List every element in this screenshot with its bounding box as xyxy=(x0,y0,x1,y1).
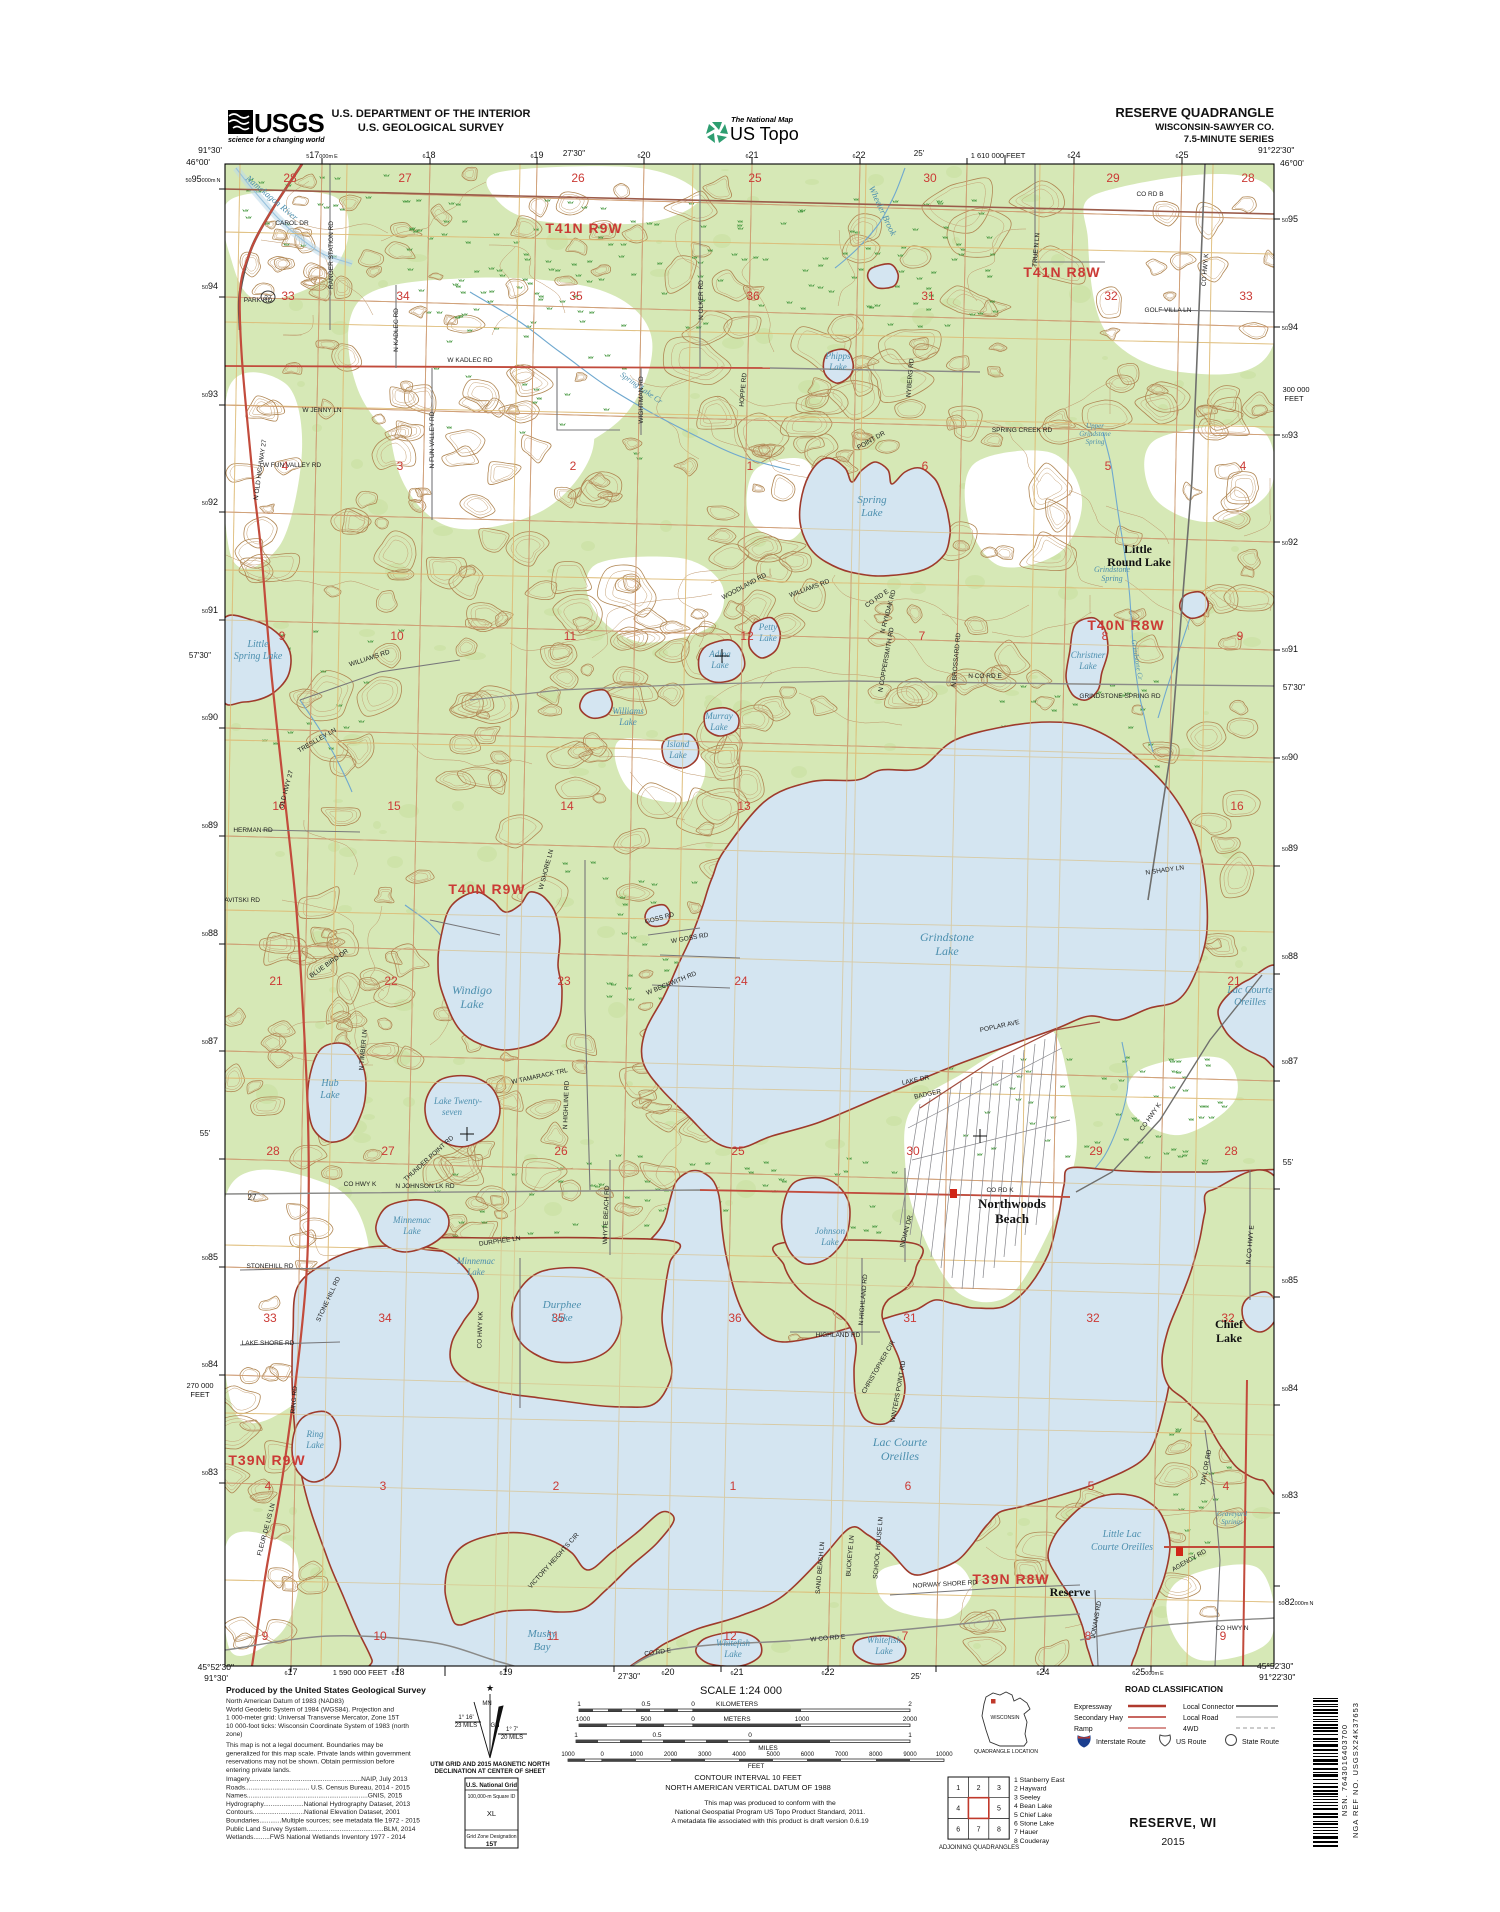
svg-text:Imagery.......................: Imagery.................................… xyxy=(226,1776,408,1783)
svg-text:3 Seeley: 3 Seeley xyxy=(1014,1794,1041,1801)
svg-text:N FUN VALLEY RD: N FUN VALLEY RD xyxy=(429,411,436,468)
svg-text:34: 34 xyxy=(378,1311,392,1325)
svg-text:31: 31 xyxy=(921,289,935,303)
svg-text:Boundaries............Multiple: Boundaries............Multiple sources; … xyxy=(226,1818,420,1825)
svg-text:91°30': 91°30' xyxy=(198,145,222,155)
svg-text:N JOHNSON LK RD: N JOHNSON LK RD xyxy=(395,1183,455,1190)
svg-text:U.S. National Grid: U.S. National Grid xyxy=(466,1783,517,1789)
svg-text:0: 0 xyxy=(748,1732,752,1739)
svg-text:2015: 2015 xyxy=(1161,1836,1185,1848)
svg-text:4: 4 xyxy=(265,1479,272,1493)
svg-text:91°22'30": 91°22'30" xyxy=(1259,1672,1295,1682)
svg-text:State Route: State Route xyxy=(1242,1739,1279,1746)
svg-text:2: 2 xyxy=(908,1701,912,1708)
svg-text:4WD: 4WD xyxy=(1183,1726,1199,1733)
svg-text:CAROL DR: CAROL DR xyxy=(275,220,309,227)
svg-text:300 000: 300 000 xyxy=(1282,385,1309,394)
svg-text:Lake: Lake xyxy=(828,362,847,372)
svg-text:4: 4 xyxy=(1240,459,1247,473)
svg-text:Lake: Lake xyxy=(874,1646,893,1656)
svg-text:2: 2 xyxy=(977,1785,981,1792)
svg-text:5: 5 xyxy=(1088,1479,1095,1493)
svg-text:Spring Lake: Spring Lake xyxy=(234,651,283,662)
svg-text:9: 9 xyxy=(1237,629,1244,643)
svg-text:Little Lac: Little Lac xyxy=(1102,1529,1142,1540)
svg-text:32: 32 xyxy=(1104,289,1118,303)
svg-text:1: 1 xyxy=(574,1732,578,1739)
svg-text:Whitefish: Whitefish xyxy=(867,1635,901,1645)
svg-text:7: 7 xyxy=(919,629,926,643)
svg-text:Expressway: Expressway xyxy=(1074,1704,1112,1711)
svg-text:0.5: 0.5 xyxy=(641,1701,650,1708)
svg-text:13: 13 xyxy=(737,799,751,813)
svg-text:Lake: Lake xyxy=(860,507,883,519)
svg-text:30: 30 xyxy=(906,1144,920,1158)
svg-text:zone): zone) xyxy=(226,1731,243,1738)
svg-text:33: 33 xyxy=(263,1311,277,1325)
svg-text:Little: Little xyxy=(1124,542,1153,556)
svg-text:3: 3 xyxy=(380,1479,387,1493)
svg-text:9: 9 xyxy=(279,629,286,643)
svg-text:SPRING CREEK RD: SPRING CREEK RD xyxy=(992,427,1053,434)
svg-text:2: 2 xyxy=(570,459,577,473)
svg-text:1000: 1000 xyxy=(576,1716,591,1723)
svg-text:Lake: Lake xyxy=(758,633,777,643)
svg-text:RANGER STATION RD: RANGER STATION RD xyxy=(328,221,335,289)
svg-text:CO RD B: CO RD B xyxy=(1136,191,1163,198)
svg-text:Lake: Lake xyxy=(1216,1331,1243,1345)
svg-text:Oreilles: Oreilles xyxy=(881,1449,920,1463)
svg-text:Contours......................: Contours............................Nati… xyxy=(226,1809,400,1816)
svg-text:HIGHLAND RD: HIGHLAND RD xyxy=(816,1332,861,1339)
svg-text:5 Chief Lake: 5 Chief Lake xyxy=(1014,1812,1052,1819)
svg-text:Lake: Lake xyxy=(723,1649,742,1659)
svg-text:generalized for this map scale: generalized for this map scale. Private … xyxy=(226,1750,411,1757)
svg-text:W JENNY LN: W JENNY LN xyxy=(302,407,342,414)
svg-text:270 000: 270 000 xyxy=(186,1381,213,1390)
svg-text:10000: 10000 xyxy=(936,1752,953,1758)
svg-text:ROAD CLASSIFICATION: ROAD CLASSIFICATION xyxy=(1125,1684,1223,1694)
svg-text:30: 30 xyxy=(923,171,937,185)
svg-text:3: 3 xyxy=(997,1785,1001,1792)
svg-text:0.5: 0.5 xyxy=(652,1732,661,1739)
svg-text:Lac Courte: Lac Courte xyxy=(872,1435,928,1449)
svg-text:500: 500 xyxy=(641,1716,652,1723)
svg-text:27'30": 27'30" xyxy=(563,149,585,158)
svg-text:6: 6 xyxy=(905,1479,912,1493)
svg-text:46°00': 46°00' xyxy=(186,157,210,167)
svg-text:N OLKER RD: N OLKER RD xyxy=(698,280,705,320)
svg-text:28: 28 xyxy=(283,171,297,185)
svg-text:Adina: Adina xyxy=(708,649,731,659)
svg-text:3000: 3000 xyxy=(698,1752,712,1758)
svg-text:27: 27 xyxy=(264,295,272,302)
svg-text:25: 25 xyxy=(731,1144,745,1158)
svg-text:UTM GRID AND 2015 MAGNETIC NOR: UTM GRID AND 2015 MAGNETIC NORTH xyxy=(430,1761,550,1768)
svg-text:Oreilles: Oreilles xyxy=(1234,997,1266,1008)
svg-text:25': 25' xyxy=(911,1672,922,1681)
svg-text:Lake: Lake xyxy=(820,1237,839,1247)
svg-text:100,000-m Square ID: 100,000-m Square ID xyxy=(468,1794,516,1800)
svg-text:North American Datum of 1983 (: North American Datum of 1983 (NAD83) xyxy=(226,1698,344,1705)
svg-text:Hydrography...................: Hydrography......................Nationa… xyxy=(226,1801,411,1808)
svg-text:1: 1 xyxy=(747,459,754,473)
svg-text:RESERVE, WI: RESERVE, WI xyxy=(1129,1816,1216,1830)
svg-text:Springs: Springs xyxy=(1221,1518,1243,1526)
svg-text:SAVITSKI RD: SAVITSKI RD xyxy=(220,897,260,904)
svg-text:GN: GN xyxy=(491,1723,500,1729)
svg-text:1000: 1000 xyxy=(795,1716,810,1723)
svg-text:CONTOUR INTERVAL 10 FEET: CONTOUR INTERVAL 10 FEET xyxy=(694,1773,802,1782)
svg-text:entering private lands.: entering private lands. xyxy=(226,1767,291,1774)
svg-text:QUADRANGLE LOCATION: QUADRANGLE LOCATION xyxy=(974,1749,1038,1755)
svg-text:DECLINATION AT CENTER OF SHEET: DECLINATION AT CENTER OF SHEET xyxy=(435,1768,546,1775)
svg-text:Spring: Spring xyxy=(1086,438,1105,446)
svg-text:1: 1 xyxy=(908,1732,912,1739)
svg-text:12: 12 xyxy=(740,629,754,643)
svg-text:MILES: MILES xyxy=(758,1745,778,1752)
svg-text:GRINDSTONE SPRING RD: GRINDSTONE SPRING RD xyxy=(1079,693,1160,700)
svg-text:21: 21 xyxy=(269,974,283,988)
svg-text:T40N R8W: T40N R8W xyxy=(1087,617,1164,633)
svg-text:2000: 2000 xyxy=(903,1716,918,1723)
svg-text:Roads.........................: Roads...................................… xyxy=(226,1784,410,1791)
svg-text:Grindstone: Grindstone xyxy=(1079,430,1111,438)
svg-text:N CO RD E: N CO RD E xyxy=(968,673,1002,680)
svg-text:Public Land Survey System..: Public Land Survey System...............… xyxy=(226,1826,416,1833)
svg-text:N KADLEC RD: N KADLEC RD xyxy=(393,308,400,352)
svg-text:Durphee: Durphee xyxy=(542,1299,582,1311)
svg-text:0: 0 xyxy=(691,1716,695,1723)
svg-text:2: 2 xyxy=(553,1479,560,1493)
svg-text:XL: XL xyxy=(487,1809,496,1818)
svg-text:11: 11 xyxy=(564,629,577,643)
svg-text:22: 22 xyxy=(384,974,398,988)
svg-text:METERS: METERS xyxy=(723,1716,751,1723)
svg-text:NORTH AMERICAN VERTICAL DATUM: NORTH AMERICAN VERTICAL DATUM OF 1988 xyxy=(665,1783,831,1792)
svg-text:World Geodetic System of 1984: World Geodetic System of 1984 (WGS84). P… xyxy=(226,1706,394,1713)
svg-text:NSN. 7643016403700: NSN. 7643016403700 xyxy=(1340,1724,1349,1816)
svg-text:Local Connector: Local Connector xyxy=(1183,1704,1235,1711)
svg-text:Lake: Lake xyxy=(709,722,728,732)
svg-text:Johnson: Johnson xyxy=(815,1226,845,1236)
svg-text:CO HWY K: CO HWY K xyxy=(344,1181,377,1188)
svg-text:FEET: FEET xyxy=(1284,394,1304,403)
svg-text:27: 27 xyxy=(398,171,412,185)
svg-text:Lake: Lake xyxy=(466,1267,485,1277)
svg-text:6: 6 xyxy=(956,1826,960,1833)
svg-text:T40N R9W: T40N R9W xyxy=(448,881,525,897)
svg-text:WISCONSIN-SAWYER CO.: WISCONSIN-SAWYER CO. xyxy=(1155,122,1274,133)
svg-text:1° 7': 1° 7' xyxy=(506,1727,518,1733)
svg-text:8: 8 xyxy=(997,1826,1001,1833)
svg-text:34: 34 xyxy=(396,289,410,303)
svg-text:Spring: Spring xyxy=(857,494,887,506)
svg-text:The National Map: The National Map xyxy=(731,115,794,124)
svg-text:26: 26 xyxy=(571,171,585,185)
svg-text:Northwoods: Northwoods xyxy=(978,1196,1046,1211)
svg-text:2 Hayward: 2 Hayward xyxy=(1014,1786,1047,1793)
svg-text:35: 35 xyxy=(569,289,583,303)
svg-text:32: 32 xyxy=(1086,1311,1100,1325)
svg-text:27'30": 27'30" xyxy=(618,1672,640,1681)
svg-text:28: 28 xyxy=(266,1144,280,1158)
svg-text:0: 0 xyxy=(691,1701,695,1708)
svg-text:1 590 000 FEET: 1 590 000 FEET xyxy=(333,1668,388,1677)
svg-text:46°00': 46°00' xyxy=(1280,158,1304,168)
svg-text:2000: 2000 xyxy=(664,1752,678,1758)
svg-text:W KADLEC RD: W KADLEC RD xyxy=(447,357,492,364)
svg-text:1 Stanberry East: 1 Stanberry East xyxy=(1014,1777,1065,1784)
svg-text:45°52'30": 45°52'30" xyxy=(1257,1661,1293,1671)
svg-text:Round Lake: Round Lake xyxy=(1107,555,1171,569)
svg-text:T39N R9W: T39N R9W xyxy=(228,1452,305,1468)
svg-text:1000: 1000 xyxy=(561,1752,575,1758)
svg-text:45°52'30": 45°52'30" xyxy=(198,1662,234,1672)
svg-text:10 000-foot ticks: Wisconsin C: 10 000-foot ticks: Wisconsin Coordinate … xyxy=(226,1723,409,1730)
svg-text:CO RD K: CO RD K xyxy=(986,1187,1014,1194)
svg-text:Minnemac: Minnemac xyxy=(392,1215,431,1225)
svg-text:25': 25' xyxy=(914,149,925,158)
svg-text:W FUN VALLEY RD: W FUN VALLEY RD xyxy=(263,462,322,469)
svg-text:7000: 7000 xyxy=(835,1752,849,1758)
svg-text:RESERVE QUADRANGLE: RESERVE QUADRANGLE xyxy=(1115,105,1274,120)
svg-text:4000: 4000 xyxy=(732,1752,746,1758)
svg-text:Spring: Spring xyxy=(1101,574,1122,583)
svg-text:T41N R9W: T41N R9W xyxy=(545,220,622,236)
svg-text:31: 31 xyxy=(903,1311,917,1325)
svg-text:USGS: USGS xyxy=(254,108,324,138)
svg-text:A metadata file associated wit: A metadata file associated with this pro… xyxy=(671,1818,868,1825)
svg-text:seven: seven xyxy=(442,1107,462,1117)
svg-text:6 Stone Lake: 6 Stone Lake xyxy=(1014,1821,1054,1828)
svg-text:7: 7 xyxy=(902,1629,909,1643)
svg-text:Graveyard: Graveyard xyxy=(1217,1510,1248,1518)
svg-text:US Route: US Route xyxy=(1176,1739,1206,1746)
svg-text:ADJOINING QUADRANGLES: ADJOINING QUADRANGLES xyxy=(939,1845,1019,1851)
svg-text:Interstate Route: Interstate Route xyxy=(1096,1739,1146,1746)
svg-text:Upper: Upper xyxy=(1086,422,1104,430)
svg-text:Lake: Lake xyxy=(934,944,959,958)
svg-text:91°30': 91°30' xyxy=(204,1673,228,1683)
svg-text:CO HWY KK: CO HWY KK xyxy=(476,1311,484,1349)
svg-text:Christner: Christner xyxy=(1071,650,1106,660)
svg-text:10: 10 xyxy=(390,629,404,643)
svg-text:US Topo: US Topo xyxy=(730,124,799,144)
svg-text:8000: 8000 xyxy=(869,1752,883,1758)
svg-text:Whitefish: Whitefish xyxy=(716,1638,750,1648)
svg-text:1 610 000 FEET: 1 610 000 FEET xyxy=(971,151,1026,160)
svg-text:15: 15 xyxy=(387,799,401,813)
svg-text:6000: 6000 xyxy=(801,1752,815,1758)
svg-text:U.S. GEOLOGICAL SURVEY: U.S. GEOLOGICAL SURVEY xyxy=(358,122,505,134)
svg-text:10: 10 xyxy=(373,1629,387,1643)
svg-text:1: 1 xyxy=(956,1785,960,1792)
svg-text:Lake: Lake xyxy=(668,750,687,760)
svg-text:23 MILS: 23 MILS xyxy=(455,1723,477,1729)
svg-text:57'30": 57'30" xyxy=(1283,683,1305,692)
svg-text:25: 25 xyxy=(748,171,762,185)
svg-text:16: 16 xyxy=(1230,799,1244,813)
svg-text:Petty: Petty xyxy=(758,622,778,632)
svg-text:NGA REF NO. USGSX24K37653: NGA REF NO. USGSX24K37653 xyxy=(1351,1702,1360,1838)
svg-text:7 Hauer: 7 Hauer xyxy=(1014,1829,1039,1836)
svg-text:Grindstone: Grindstone xyxy=(920,930,975,944)
svg-text:6: 6 xyxy=(922,459,929,473)
svg-text:23: 23 xyxy=(557,974,571,988)
svg-text:26: 26 xyxy=(554,1144,568,1158)
svg-text:36: 36 xyxy=(746,289,760,303)
svg-text:7: 7 xyxy=(977,1826,981,1833)
svg-text:29: 29 xyxy=(1089,1144,1103,1158)
svg-text:Chief: Chief xyxy=(1215,1317,1244,1331)
svg-text:55': 55' xyxy=(1283,1158,1294,1167)
svg-text:14: 14 xyxy=(560,799,574,813)
svg-text:Lac Courte: Lac Courte xyxy=(1226,985,1273,996)
svg-text:5: 5 xyxy=(997,1806,1001,1813)
svg-text:Windigo: Windigo xyxy=(452,983,492,997)
svg-text:Lake: Lake xyxy=(1078,661,1097,671)
svg-text:27: 27 xyxy=(381,1144,395,1158)
svg-text:8 Couderay: 8 Couderay xyxy=(1014,1838,1050,1845)
svg-text:MN: MN xyxy=(482,1701,491,1707)
svg-text:33: 33 xyxy=(1239,289,1253,303)
svg-text:Ring: Ring xyxy=(306,1429,324,1439)
svg-text:28: 28 xyxy=(1241,171,1255,185)
svg-text:3: 3 xyxy=(397,459,404,473)
svg-text:National Geospatial Program US: National Geospatial Program US Topo Prod… xyxy=(675,1809,865,1816)
svg-text:9000: 9000 xyxy=(903,1752,917,1758)
svg-text:9: 9 xyxy=(262,1629,269,1643)
svg-text:Grid Zone Designation: Grid Zone Designation xyxy=(466,1834,516,1840)
svg-text:Secondary Hwy: Secondary Hwy xyxy=(1074,1715,1124,1722)
svg-text:★: ★ xyxy=(486,1683,494,1693)
svg-text:4 Bean Lake: 4 Bean Lake xyxy=(1014,1803,1052,1810)
svg-text:57'30": 57'30" xyxy=(189,651,211,660)
svg-text:Bay: Bay xyxy=(533,1641,550,1653)
svg-text:Produced by the United States: Produced by the United States Geological… xyxy=(226,1685,426,1695)
svg-text:Lake Twenty-: Lake Twenty- xyxy=(433,1096,482,1106)
svg-text:science for a changing world: science for a changing world xyxy=(228,137,325,144)
svg-text:FEET: FEET xyxy=(748,1763,765,1770)
svg-text:24: 24 xyxy=(734,974,748,988)
svg-text:29: 29 xyxy=(1106,171,1120,185)
svg-text:LAKE SHORE RD: LAKE SHORE RD xyxy=(242,1340,295,1347)
svg-text:This map was produced to confo: This map was produced to conform with th… xyxy=(704,1800,836,1807)
svg-text:15T: 15T xyxy=(486,1841,497,1848)
svg-text:Lake: Lake xyxy=(319,1090,340,1101)
svg-text:SCALE 1:24 000: SCALE 1:24 000 xyxy=(700,1685,782,1697)
svg-text:Wetlands.........FWS National: Wetlands.........FWS National Wetlands I… xyxy=(226,1834,406,1841)
svg-text:Phipps: Phipps xyxy=(824,351,850,361)
svg-text:4: 4 xyxy=(1223,1479,1230,1493)
svg-text:Beach: Beach xyxy=(995,1211,1030,1226)
svg-text:Murray: Murray xyxy=(704,711,733,721)
svg-text:KILOMETERS: KILOMETERS xyxy=(716,1701,759,1708)
svg-text:1 000-meter grid: Universal Tr: 1 000-meter grid: Universal Transverse M… xyxy=(226,1715,399,1722)
svg-text:Lake: Lake xyxy=(710,660,729,670)
svg-text:28: 28 xyxy=(1224,1144,1238,1158)
svg-text:Musky: Musky xyxy=(527,1628,557,1640)
svg-text:Lake: Lake xyxy=(550,1312,573,1324)
svg-text:This map is not a legal docume: This map is not a legal document. Bounda… xyxy=(226,1742,384,1749)
svg-text:Names.........................: Names...................................… xyxy=(226,1793,403,1800)
svg-text:Reserve: Reserve xyxy=(1050,1585,1091,1599)
svg-text:reservations may not be shown.: reservations may not be shown. Obtain pe… xyxy=(226,1759,395,1766)
svg-text:Island: Island xyxy=(666,739,690,749)
svg-text:Lake: Lake xyxy=(402,1226,421,1236)
svg-text:36: 36 xyxy=(728,1311,742,1325)
svg-text:HERMAN RD: HERMAN RD xyxy=(233,827,273,834)
svg-text:Lake: Lake xyxy=(305,1440,324,1450)
svg-text:Courte Oreilles: Courte Oreilles xyxy=(1091,1542,1153,1553)
svg-text:55': 55' xyxy=(200,1129,211,1138)
svg-text:Hub: Hub xyxy=(320,1078,338,1089)
svg-text:WIGHTMAN RD: WIGHTMAN RD xyxy=(638,376,645,424)
svg-text:1: 1 xyxy=(577,1701,581,1708)
svg-text:GOLF VILLA LN: GOLF VILLA LN xyxy=(1145,307,1192,314)
svg-text:U.S. DEPARTMENT OF THE INTERIO: U.S. DEPARTMENT OF THE INTERIOR xyxy=(331,108,530,120)
svg-text:7.5-MINUTE SERIES: 7.5-MINUTE SERIES xyxy=(1184,134,1274,145)
svg-text:20 MILS: 20 MILS xyxy=(501,1735,523,1741)
svg-text:Lake: Lake xyxy=(618,717,637,727)
svg-text:CO HWY N: CO HWY N xyxy=(1215,1625,1248,1632)
svg-text:4: 4 xyxy=(956,1806,960,1813)
svg-text:1000: 1000 xyxy=(630,1752,644,1758)
svg-text:STONEHILL RD: STONEHILL RD xyxy=(247,1263,294,1270)
svg-text:Little: Little xyxy=(246,639,269,650)
svg-text:33: 33 xyxy=(281,289,295,303)
svg-text:1: 1 xyxy=(730,1479,737,1493)
svg-text:5: 5 xyxy=(1105,459,1112,473)
svg-text:WISCONSIN: WISCONSIN xyxy=(991,1715,1020,1721)
svg-text:FEET: FEET xyxy=(190,1390,210,1399)
svg-text:Williams: Williams xyxy=(612,706,644,716)
svg-text:Local Road: Local Road xyxy=(1183,1715,1219,1722)
svg-text:T39N R8W: T39N R8W xyxy=(972,1571,1049,1587)
svg-text:27: 27 xyxy=(248,1193,257,1202)
svg-text:91°22'30": 91°22'30" xyxy=(1258,145,1294,155)
svg-text:1° 16': 1° 16' xyxy=(458,1715,473,1721)
svg-text:Ramp: Ramp xyxy=(1074,1726,1093,1733)
svg-text:5000: 5000 xyxy=(767,1752,781,1758)
svg-text:Minnemac: Minnemac xyxy=(456,1256,495,1266)
svg-text:Lake: Lake xyxy=(459,997,484,1011)
